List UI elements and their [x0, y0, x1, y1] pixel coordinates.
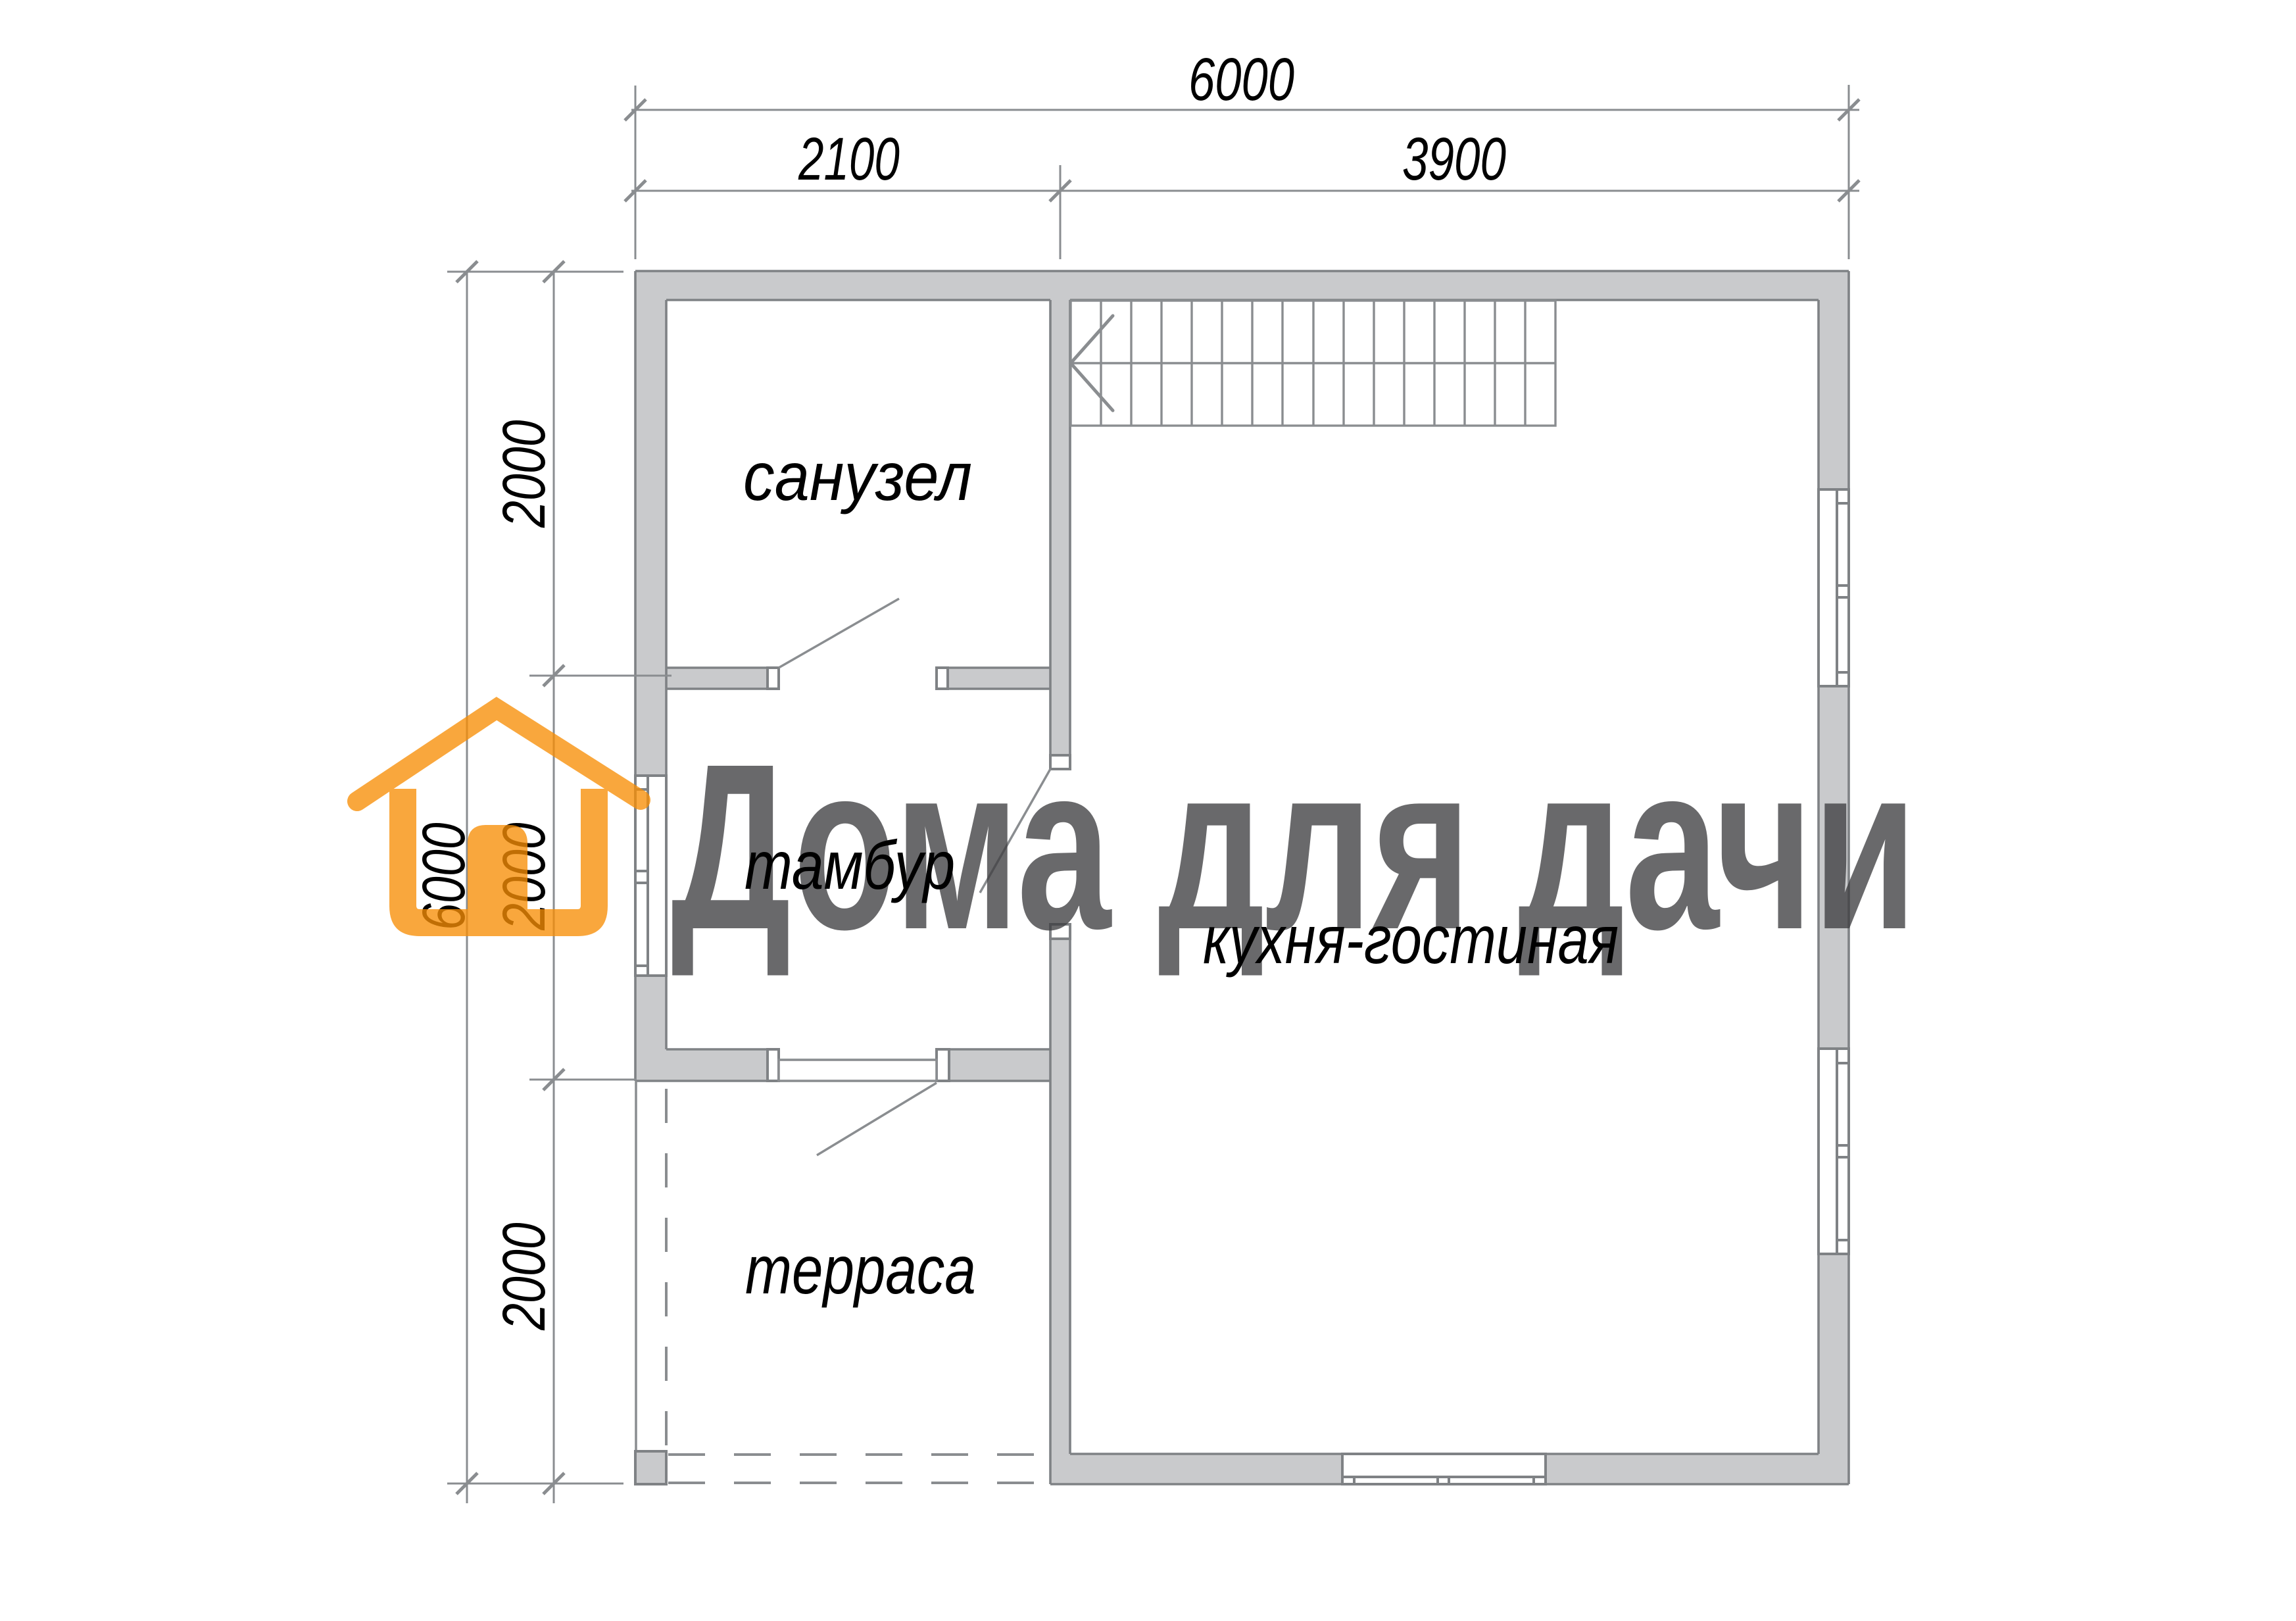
svg-text:3900: 3900	[1402, 126, 1506, 193]
svg-text:тамбур: тамбур	[745, 828, 955, 904]
svg-text:кухня-гостиная: кухня-гостиная	[1203, 902, 1619, 978]
svg-text:2000: 2000	[490, 420, 558, 528]
svg-text:санузел: санузел	[743, 439, 972, 515]
svg-text:2000: 2000	[490, 1222, 558, 1331]
svg-text:2100: 2100	[798, 125, 900, 193]
svg-text:терраса: терраса	[745, 1232, 976, 1309]
svg-text:6000: 6000	[1188, 45, 1294, 113]
